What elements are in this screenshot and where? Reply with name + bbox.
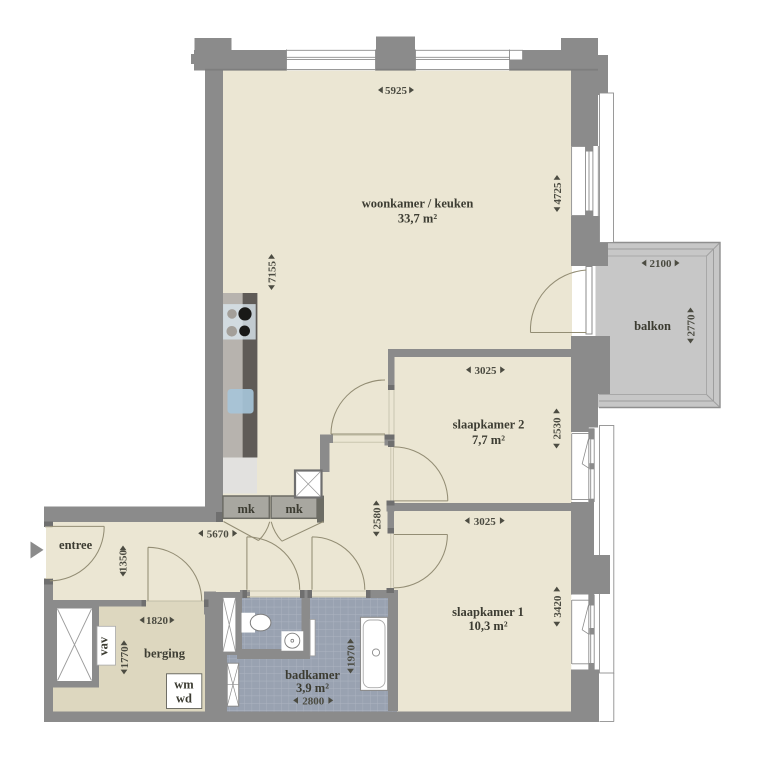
svg-text:33,7 m²: 33,7 m² — [398, 212, 437, 226]
svg-text:slaapkamer 2: slaapkamer 2 — [453, 418, 525, 432]
svg-text:3,9 m²: 3,9 m² — [296, 681, 329, 695]
svg-text:5925: 5925 — [385, 85, 408, 97]
svg-text:3025: 3025 — [475, 365, 498, 377]
svg-text:2100: 2100 — [650, 258, 673, 270]
svg-text:5670: 5670 — [207, 529, 230, 541]
svg-text:vav: vav — [97, 636, 111, 656]
svg-text:1820: 1820 — [146, 615, 169, 627]
svg-text:3025: 3025 — [474, 516, 497, 528]
svg-text:2800: 2800 — [302, 696, 325, 708]
svg-text:berging: berging — [144, 646, 186, 660]
svg-text:wd: wd — [176, 692, 192, 706]
svg-text:2530: 2530 — [552, 417, 564, 440]
svg-text:10,3 m²: 10,3 m² — [468, 619, 507, 633]
svg-text:3420: 3420 — [552, 595, 564, 618]
svg-text:1970: 1970 — [345, 645, 357, 668]
svg-text:wm: wm — [174, 678, 194, 692]
svg-text:entree: entree — [59, 538, 93, 552]
svg-text:badkamer: badkamer — [285, 668, 340, 682]
svg-text:woonkamer / keuken: woonkamer / keuken — [362, 197, 474, 211]
svg-text:1770: 1770 — [119, 646, 131, 669]
svg-text:slaapkamer 1: slaapkamer 1 — [452, 605, 524, 619]
svg-text:2770: 2770 — [686, 314, 698, 337]
svg-text:7,7 m²: 7,7 m² — [472, 433, 505, 447]
svg-text:7155: 7155 — [267, 261, 279, 284]
svg-text:balkon: balkon — [634, 319, 671, 333]
svg-text:2580: 2580 — [372, 507, 384, 530]
svg-text:mk: mk — [238, 502, 255, 516]
svg-text:mk: mk — [286, 502, 303, 516]
svg-text:4725: 4725 — [552, 182, 564, 205]
svg-text:1350: 1350 — [118, 550, 130, 573]
